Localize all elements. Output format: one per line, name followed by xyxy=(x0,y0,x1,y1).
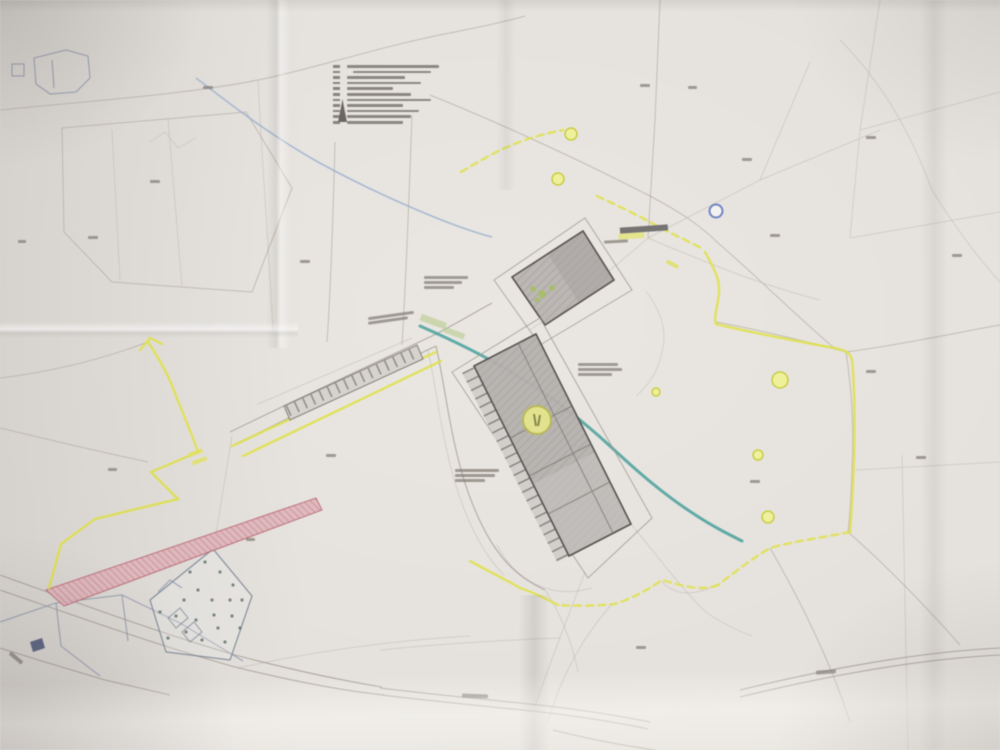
photo-vignette xyxy=(0,0,1000,750)
site-plan-photo xyxy=(0,0,1000,750)
photo-of-folded-plan xyxy=(0,0,1000,750)
